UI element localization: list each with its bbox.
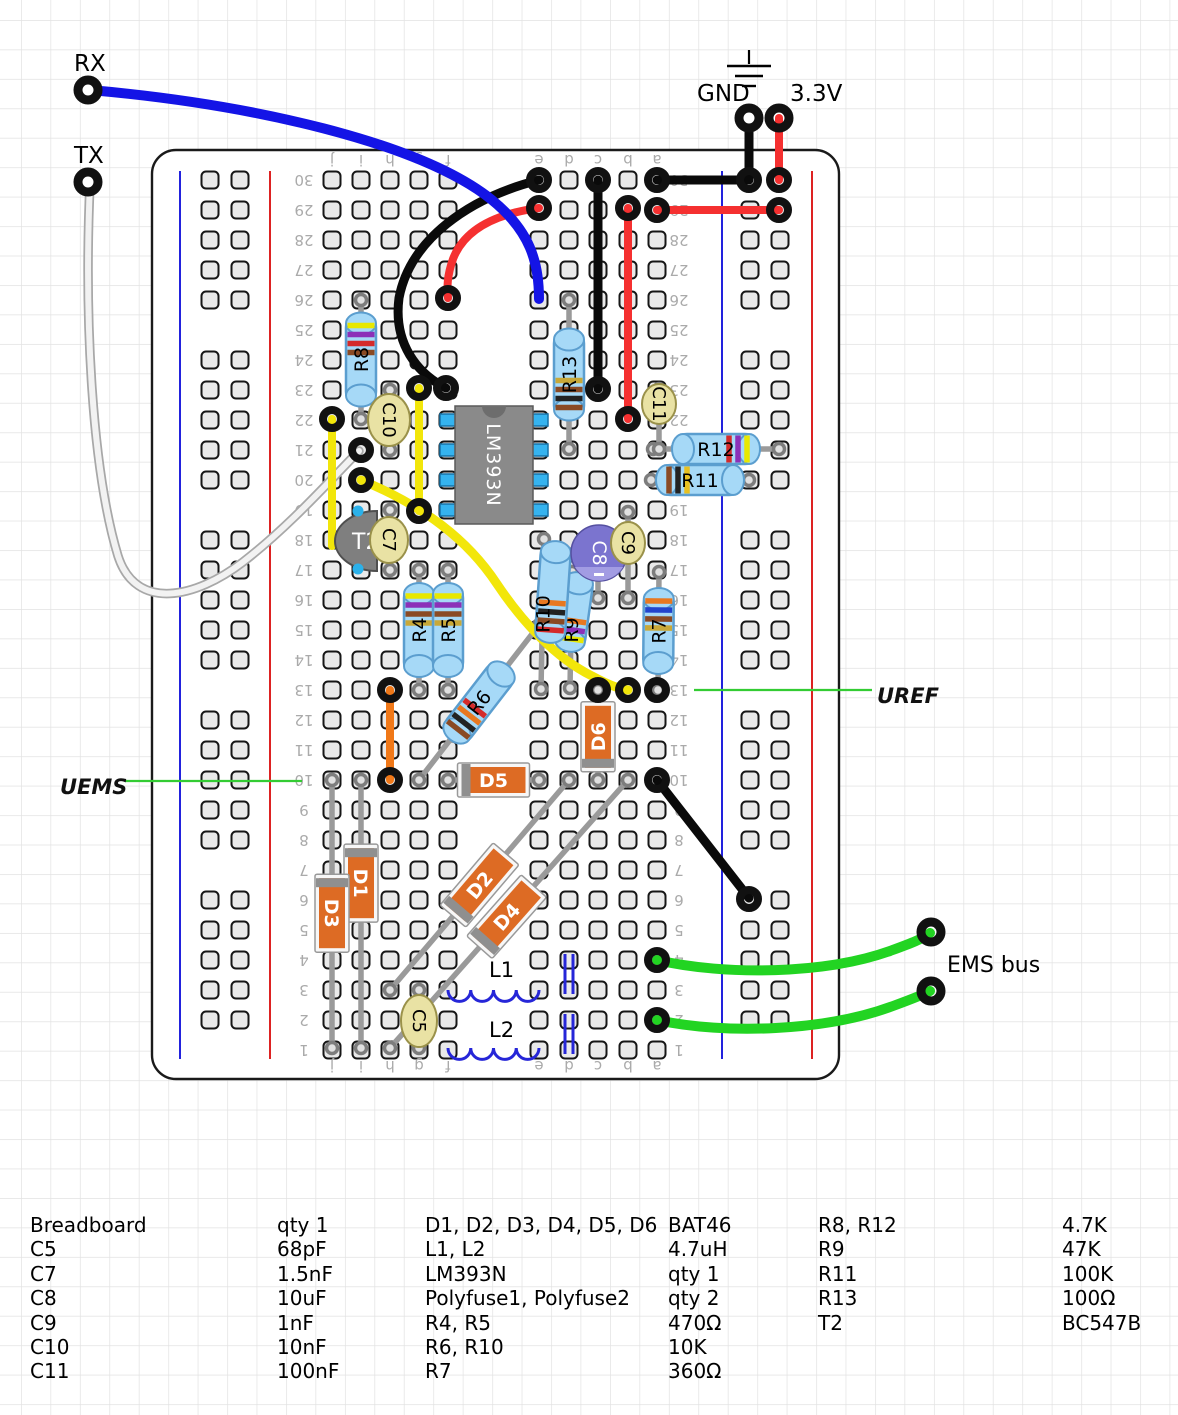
hole-d20 [561,472,578,489]
hole-f28 [440,232,457,249]
color-band [645,607,672,613]
rail-hole [742,832,759,849]
part-name: LM393N [425,1262,507,1286]
cathode-band [462,764,471,796]
col-letter: d [564,151,574,169]
hole-h28 [382,232,399,249]
rail-hole [202,532,219,549]
part-value: 47K [1062,1237,1101,1261]
row-number: 11 [294,741,313,759]
hole-c2 [590,1012,607,1029]
hole-i29 [353,202,370,219]
part-value: BAT46 [668,1213,732,1237]
diode-label: D6 [588,722,610,751]
hole-e5 [531,922,548,939]
rail-hole [772,262,789,279]
row-number: 15 [294,621,313,639]
rail-hole [772,412,789,429]
part-name: C11 [30,1359,69,1383]
rail-hole [202,952,219,969]
lead-end [385,565,396,576]
rail-hole [202,652,219,669]
parts-list-row: C568pF [30,1237,147,1261]
row-number: 30 [294,171,313,189]
transistor-pin [353,506,364,517]
rail-hole [772,562,789,579]
color-band [556,396,583,402]
lead-end [623,775,634,786]
hole-g30 [411,172,428,189]
hole-g29 [411,202,428,219]
hole-d27 [561,262,578,279]
parts-list-row: R4, R5470Ω [425,1311,657,1335]
part-value: 1nF [277,1311,314,1335]
rail-hole [232,712,249,729]
color-band [675,467,681,494]
resistor-end [554,329,584,351]
row-number: 20 [294,471,313,489]
lead-end [327,1043,338,1054]
resistor-label: R13 [559,356,581,393]
row-number: 6 [674,891,684,909]
resistor-label: R10 [533,595,555,632]
lead-end [593,593,604,604]
row-number: 29 [294,201,313,219]
rail-hole [232,382,249,399]
hole-c22 [590,412,607,429]
rail-hole [202,262,219,279]
hole-i13 [353,682,370,699]
color-band [406,602,433,608]
row-number: 3 [674,981,684,999]
lead-end [356,295,367,306]
part-value: 1.5nF [277,1262,333,1286]
rail-hole [742,712,759,729]
hole-f2 [440,1012,457,1029]
row-number: 24 [294,351,313,369]
resistor-label: R12 [697,439,734,461]
lead-end [414,985,425,996]
hole-g12 [411,712,428,729]
row-number: 9 [299,801,309,819]
row-number: 19 [669,501,688,519]
rail-hole [202,172,219,189]
hole-e23 [531,382,548,399]
rail-hole [772,382,789,399]
resistor-R8: R8 [346,313,376,407]
parts-list-row: C71.5nF [30,1262,147,1286]
hole-g7 [411,862,428,879]
part-name: R6, R10 [425,1335,504,1359]
rail-hole [232,532,249,549]
hole-b6 [620,892,637,909]
hole-c14 [590,652,607,669]
hole-d30 [561,172,578,189]
hole-g11 [411,742,428,759]
resistor-label: R8 [351,347,373,372]
color-band [348,341,375,347]
parts-list-row: T2BC547B [818,1311,897,1335]
rail-hole [232,892,249,909]
rail-hole [232,232,249,249]
resistor-end [404,655,434,677]
hole-f9 [440,802,457,819]
hole-d12 [561,712,578,729]
part-value: 4.7K [1062,1213,1107,1237]
rail-hole [742,622,759,639]
part-value: 10nF [277,1335,327,1359]
parts-list-row: L1, L24.7uH [425,1237,657,1261]
resistor-R13: R13 [554,329,584,421]
row-number: 22 [294,411,313,429]
row-number: 27 [669,261,688,279]
hole-d2 [561,1012,578,1029]
row-number: 12 [669,711,688,729]
part-value: 360Ω [668,1359,721,1383]
hole-i30 [353,172,370,189]
hole-a28 [649,232,666,249]
rail-hole [202,382,219,399]
hole-a24 [649,352,666,369]
hole-c20 [590,472,607,489]
rail-hole [742,562,759,579]
col-letter: i [359,1057,363,1075]
hole-j24 [324,352,341,369]
rail-hole [202,742,219,759]
hole-d28 [561,232,578,249]
resistor-label: R4 [409,617,431,642]
lead-end [564,444,575,455]
rail-hole [202,202,219,219]
hole-b15 [620,622,637,639]
capacitor-C7: C7 [370,517,408,563]
hole-b20 [620,472,637,489]
lead-end [443,685,454,696]
row-number: 12 [294,711,313,729]
row-number: 24 [669,351,688,369]
resistor-R12: R12 [672,434,760,464]
rail-hole [202,922,219,939]
lead-end [414,685,425,696]
rail-hole [232,472,249,489]
hole-g6 [411,892,428,909]
rail-hole [742,292,759,309]
capacitor-label: C8 [588,540,610,565]
rail-hole [232,262,249,279]
rail-hole [232,802,249,819]
row-number: 27 [294,261,313,279]
rail-hole [202,352,219,369]
rail-hole [232,622,249,639]
uref-label: UREF [877,684,940,708]
hole-e24 [531,352,548,369]
fritzing-breadboard-page: 1122334455667788991010111112121313141415… [0,0,1178,1415]
lead-end [593,775,604,786]
parts-list-row: R8, R124.7K [818,1213,897,1237]
rx-pin [78,80,98,100]
hole-a1 [649,1042,666,1059]
hole-b12 [620,712,637,729]
resistor-end [722,465,744,495]
hole-c5 [590,922,607,939]
hole-b8 [620,832,637,849]
v33-label: 3.3V [790,81,843,107]
rail-hole [742,652,759,669]
ic-lm393n: LM393N [440,406,548,524]
rail-hole [772,892,789,909]
hole-e11 [531,742,548,759]
col-letter: j [330,151,335,169]
rail-hole [202,472,219,489]
lead-end [646,475,657,486]
capacitor-label: C11 [648,386,669,421]
diode-label: D3 [320,899,342,928]
row-number: 7 [674,861,684,879]
hole-h2 [382,1012,399,1029]
part-name: C5 [30,1237,57,1261]
rail-hole [742,412,759,429]
hole-b3 [620,982,637,999]
hole-h27 [382,262,399,279]
part-name: C10 [30,1335,69,1359]
part-name: D1, D2, D3, D4, D5, D6 [425,1213,657,1237]
hole-f4 [440,952,457,969]
rail-hole [772,802,789,819]
uems-label: UEMS [60,775,127,799]
part-name: R4, R5 [425,1311,491,1335]
capacitor-C11: C11 [642,384,676,424]
hole-i15 [353,622,370,639]
row-number: 26 [669,291,688,309]
inductor-label: L2 [489,1018,514,1042]
parts-list-row: C11100nF [30,1359,147,1383]
row-number: 17 [669,561,688,579]
color-band [666,467,672,494]
hole-c1 [590,1042,607,1059]
hole-j17 [324,562,341,579]
hole-i28 [353,232,370,249]
hole-c6 [590,892,607,909]
rail-hole [772,832,789,849]
lead-end [564,775,575,786]
diode-D6: D6 [581,702,615,772]
part-value: qty 1 [668,1262,719,1286]
capacitor-C10: C10 [368,394,410,446]
part-value: 100Ω [1062,1286,1115,1310]
hole-b30 [620,172,637,189]
lead-end [385,1043,396,1054]
ic-label: LM393N [482,423,504,506]
rail-hole [742,982,759,999]
rail-hole [232,292,249,309]
capacitor-label: C9 [617,531,638,555]
row-number: 18 [294,531,313,549]
hole-g26 [411,292,428,309]
part-name: R13 [818,1286,857,1310]
parts-list-row: R6, R1010K [425,1335,657,1359]
hole-g5 [411,922,428,939]
diode-label: D1 [349,869,371,898]
col-letter: a [652,151,661,169]
rail-hole [202,232,219,249]
row-number: 25 [669,321,688,339]
hole-a6 [649,892,666,909]
rail-hole [232,832,249,849]
hole-i16 [353,592,370,609]
rail-hole [742,232,759,249]
hole-h30 [382,172,399,189]
color-band [348,332,375,338]
color-band [645,598,672,604]
rail-hole [232,442,249,459]
rail-hole [742,532,759,549]
row-number: 23 [294,381,313,399]
part-value: 100nF [277,1359,339,1383]
hole-f24 [440,352,457,369]
lead-end [356,775,367,786]
part-value: qty 1 [277,1213,328,1237]
hole-j25 [324,322,341,339]
hole-a18 [649,532,666,549]
lead-end [385,505,396,516]
hole-a5 [649,922,666,939]
rail-hole [232,352,249,369]
cathode-band [345,848,377,857]
part-name: R7 [425,1359,452,1383]
col-letter: g [414,1057,424,1075]
hole-j28 [324,232,341,249]
hole-a27 [649,262,666,279]
part-value: 10K [668,1335,707,1359]
hole-h8 [382,832,399,849]
hole-c15 [590,622,607,639]
col-letter: e [534,1057,543,1075]
resistor-label: R7 [649,618,671,643]
color-band [435,611,462,617]
transistor-pin [353,564,364,575]
row-number: 5 [674,921,684,939]
hole-d9 [561,802,578,819]
parts-list-row: R11100K [818,1262,897,1286]
lead-end [327,775,338,786]
color-band [406,611,433,617]
gnd-pin [739,108,759,128]
part-value: 100K [1062,1262,1113,1286]
resistor-end [433,655,463,677]
rail-hole [742,802,759,819]
hole-b1 [620,1042,637,1059]
rail-hole [772,982,789,999]
row-number: 1 [674,1041,684,1059]
row-number: 14 [294,651,313,669]
col-letter: c [594,151,602,169]
hole-e12 [531,712,548,729]
rail-hole [202,442,219,459]
row-number: 13 [294,681,313,699]
lead-end [744,475,755,486]
col-letter: d [564,1057,574,1075]
hole-a25 [649,322,666,339]
row-number: 25 [294,321,313,339]
row-number: 28 [669,231,688,249]
row-number: 16 [294,591,313,609]
hole-b14 [620,652,637,669]
part-name: Breadboard [30,1213,147,1237]
hole-i14 [353,652,370,669]
rail-hole [202,802,219,819]
rail-hole [232,742,249,759]
lead-end [443,565,454,576]
lead-end [623,507,634,518]
rail-hole [772,772,789,789]
hole-c21 [590,442,607,459]
rail-hole [202,982,219,999]
parts-list-column: Breadboardqty 1C568pFC71.5nFC810uFC91nFC… [30,1213,147,1384]
lead-end [356,1043,367,1054]
color-band [435,593,462,599]
hole-a11 [649,742,666,759]
col-letter: c [594,1057,602,1075]
hole-j12 [324,712,341,729]
rail-hole [772,742,789,759]
resistor-R5: R5 [433,583,463,677]
parts-list-row: C1010nF [30,1335,147,1359]
rail-hole [772,232,789,249]
rail-hole [772,592,789,609]
color-band [744,436,750,463]
hole-j15 [324,622,341,639]
hole-d19 [561,502,578,519]
minus-mark [594,573,604,576]
lead-end [654,567,665,578]
hole-c3 [590,982,607,999]
rx-label: RX [74,51,106,77]
resistor-R4: R4 [404,583,434,677]
row-number: 17 [294,561,313,579]
color-band [348,323,375,329]
row-number: 10 [669,771,688,789]
hole-a3 [649,982,666,999]
capacitor-label: C5 [408,1009,429,1033]
rail-hole [772,922,789,939]
hole-c8 [590,832,607,849]
part-name: R11 [818,1262,857,1286]
lead-end [623,593,634,604]
rail-hole [772,532,789,549]
hole-j11 [324,742,341,759]
part-value: qty 2 [668,1286,719,1310]
rail-hole [742,742,759,759]
capacitor-label: C7 [378,528,399,552]
col-letter: f [445,1057,451,1075]
col-letter: e [534,151,543,169]
part-value: 68pF [277,1237,327,1261]
rail-hole [742,382,759,399]
hole-i11 [353,742,370,759]
hole-i27 [353,262,370,279]
rail-hole [742,352,759,369]
col-letter: b [623,1057,633,1075]
rail-hole [232,172,249,189]
capacitor-label: C10 [378,402,399,437]
parts-list-row: R947K [818,1237,897,1261]
hole-d6 [561,892,578,909]
hole-c7 [590,862,607,879]
lead-end [774,444,785,455]
rail-hole [232,922,249,939]
hole-h9 [382,802,399,819]
rail-hole [232,592,249,609]
